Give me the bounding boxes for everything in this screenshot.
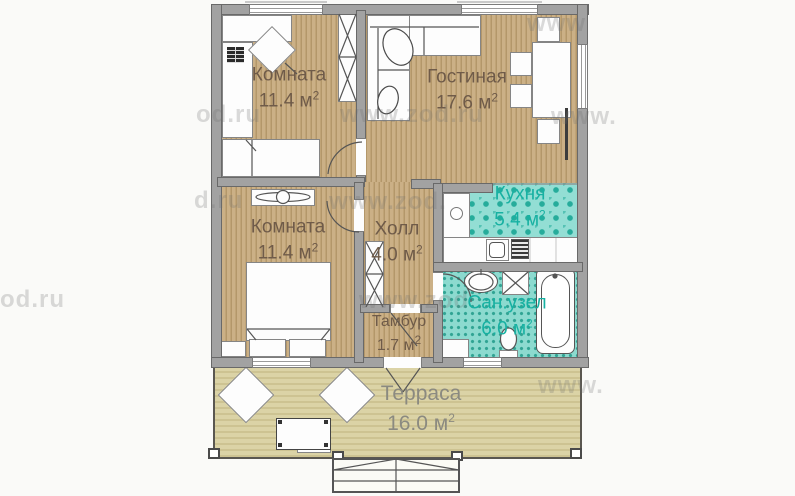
watermark: www. bbox=[551, 103, 617, 131]
pillow bbox=[289, 339, 326, 357]
window-sill bbox=[245, 1, 327, 3]
single-bed bbox=[222, 139, 320, 177]
room-area: 6.0 м2 bbox=[467, 313, 546, 339]
room-area: 4.0 м2 bbox=[371, 239, 422, 265]
label-terrace: Терраса 16.0 м2 bbox=[381, 382, 462, 436]
watermark: od.ru bbox=[196, 101, 261, 129]
room-name: Гостиная bbox=[427, 66, 507, 87]
room-name: Холл bbox=[371, 218, 422, 239]
label-room-top-left: Комната 11.4 м2 bbox=[252, 64, 326, 111]
watermark: od.ru bbox=[0, 286, 65, 314]
room-area: 1.7 м2 bbox=[372, 331, 426, 355]
watermark: www bbox=[527, 10, 586, 38]
window-bathroom bbox=[463, 357, 502, 368]
room-name: Комната bbox=[252, 64, 326, 85]
stove bbox=[511, 239, 529, 259]
room-area: 11.4 м2 bbox=[252, 85, 326, 111]
label-kitchen: Кухня 5.4 м2 bbox=[494, 183, 545, 230]
window-room2 bbox=[252, 357, 311, 368]
label-bathroom: Сан.узел 6.0 м2 bbox=[467, 292, 546, 339]
room-name: Тамбур bbox=[372, 313, 426, 331]
floor-plan: Комната 11.4 м2 Гостиная 17.6 м2 Кухня 5… bbox=[0, 0, 795, 496]
double-bed bbox=[246, 262, 331, 341]
kitchen-stool bbox=[450, 207, 463, 220]
room-name: Кухня bbox=[494, 183, 545, 204]
wall-room1-room2 bbox=[217, 177, 365, 187]
desk-computer-icon bbox=[227, 47, 244, 63]
window-sill bbox=[457, 1, 542, 3]
tv-stand bbox=[251, 189, 315, 206]
watermark: www.zod.ru bbox=[340, 101, 484, 129]
room-name: Сан.узел bbox=[467, 292, 546, 313]
label-hall: Холл 4.0 м2 bbox=[371, 218, 422, 265]
label-room-bottom-left: Комната 11.4 м2 bbox=[251, 216, 325, 263]
window-living-right bbox=[577, 44, 588, 109]
watermark: www.zod. bbox=[329, 188, 447, 216]
room-name: Комната bbox=[251, 216, 325, 237]
terrace-post bbox=[570, 448, 582, 459]
watermark: www.zod bbox=[359, 287, 469, 315]
window-room1 bbox=[249, 4, 323, 15]
terrace-table bbox=[276, 418, 331, 450]
kitchen-sink-basin bbox=[489, 242, 505, 258]
dining-chair bbox=[510, 84, 532, 108]
stairs bbox=[332, 458, 460, 493]
dining-chair bbox=[510, 52, 532, 76]
wall-kitchen-bath bbox=[433, 262, 583, 272]
door-opening-entrance bbox=[383, 357, 422, 368]
pillow bbox=[249, 339, 286, 357]
label-tambour: Тамбур 1.7 м2 bbox=[372, 313, 426, 355]
room-area: 5.4 м2 bbox=[494, 204, 545, 230]
room-area: 11.4 м2 bbox=[251, 237, 325, 263]
watermark: www. bbox=[538, 372, 604, 400]
room-name: Терраса bbox=[381, 382, 462, 406]
watermark: d.ru bbox=[194, 187, 243, 215]
terrace-post bbox=[208, 448, 220, 459]
door-opening-room1 bbox=[356, 138, 366, 176]
wardrobe bbox=[338, 13, 357, 102]
room-area: 16.0 м2 bbox=[381, 406, 462, 436]
bedside-bench bbox=[221, 341, 246, 357]
